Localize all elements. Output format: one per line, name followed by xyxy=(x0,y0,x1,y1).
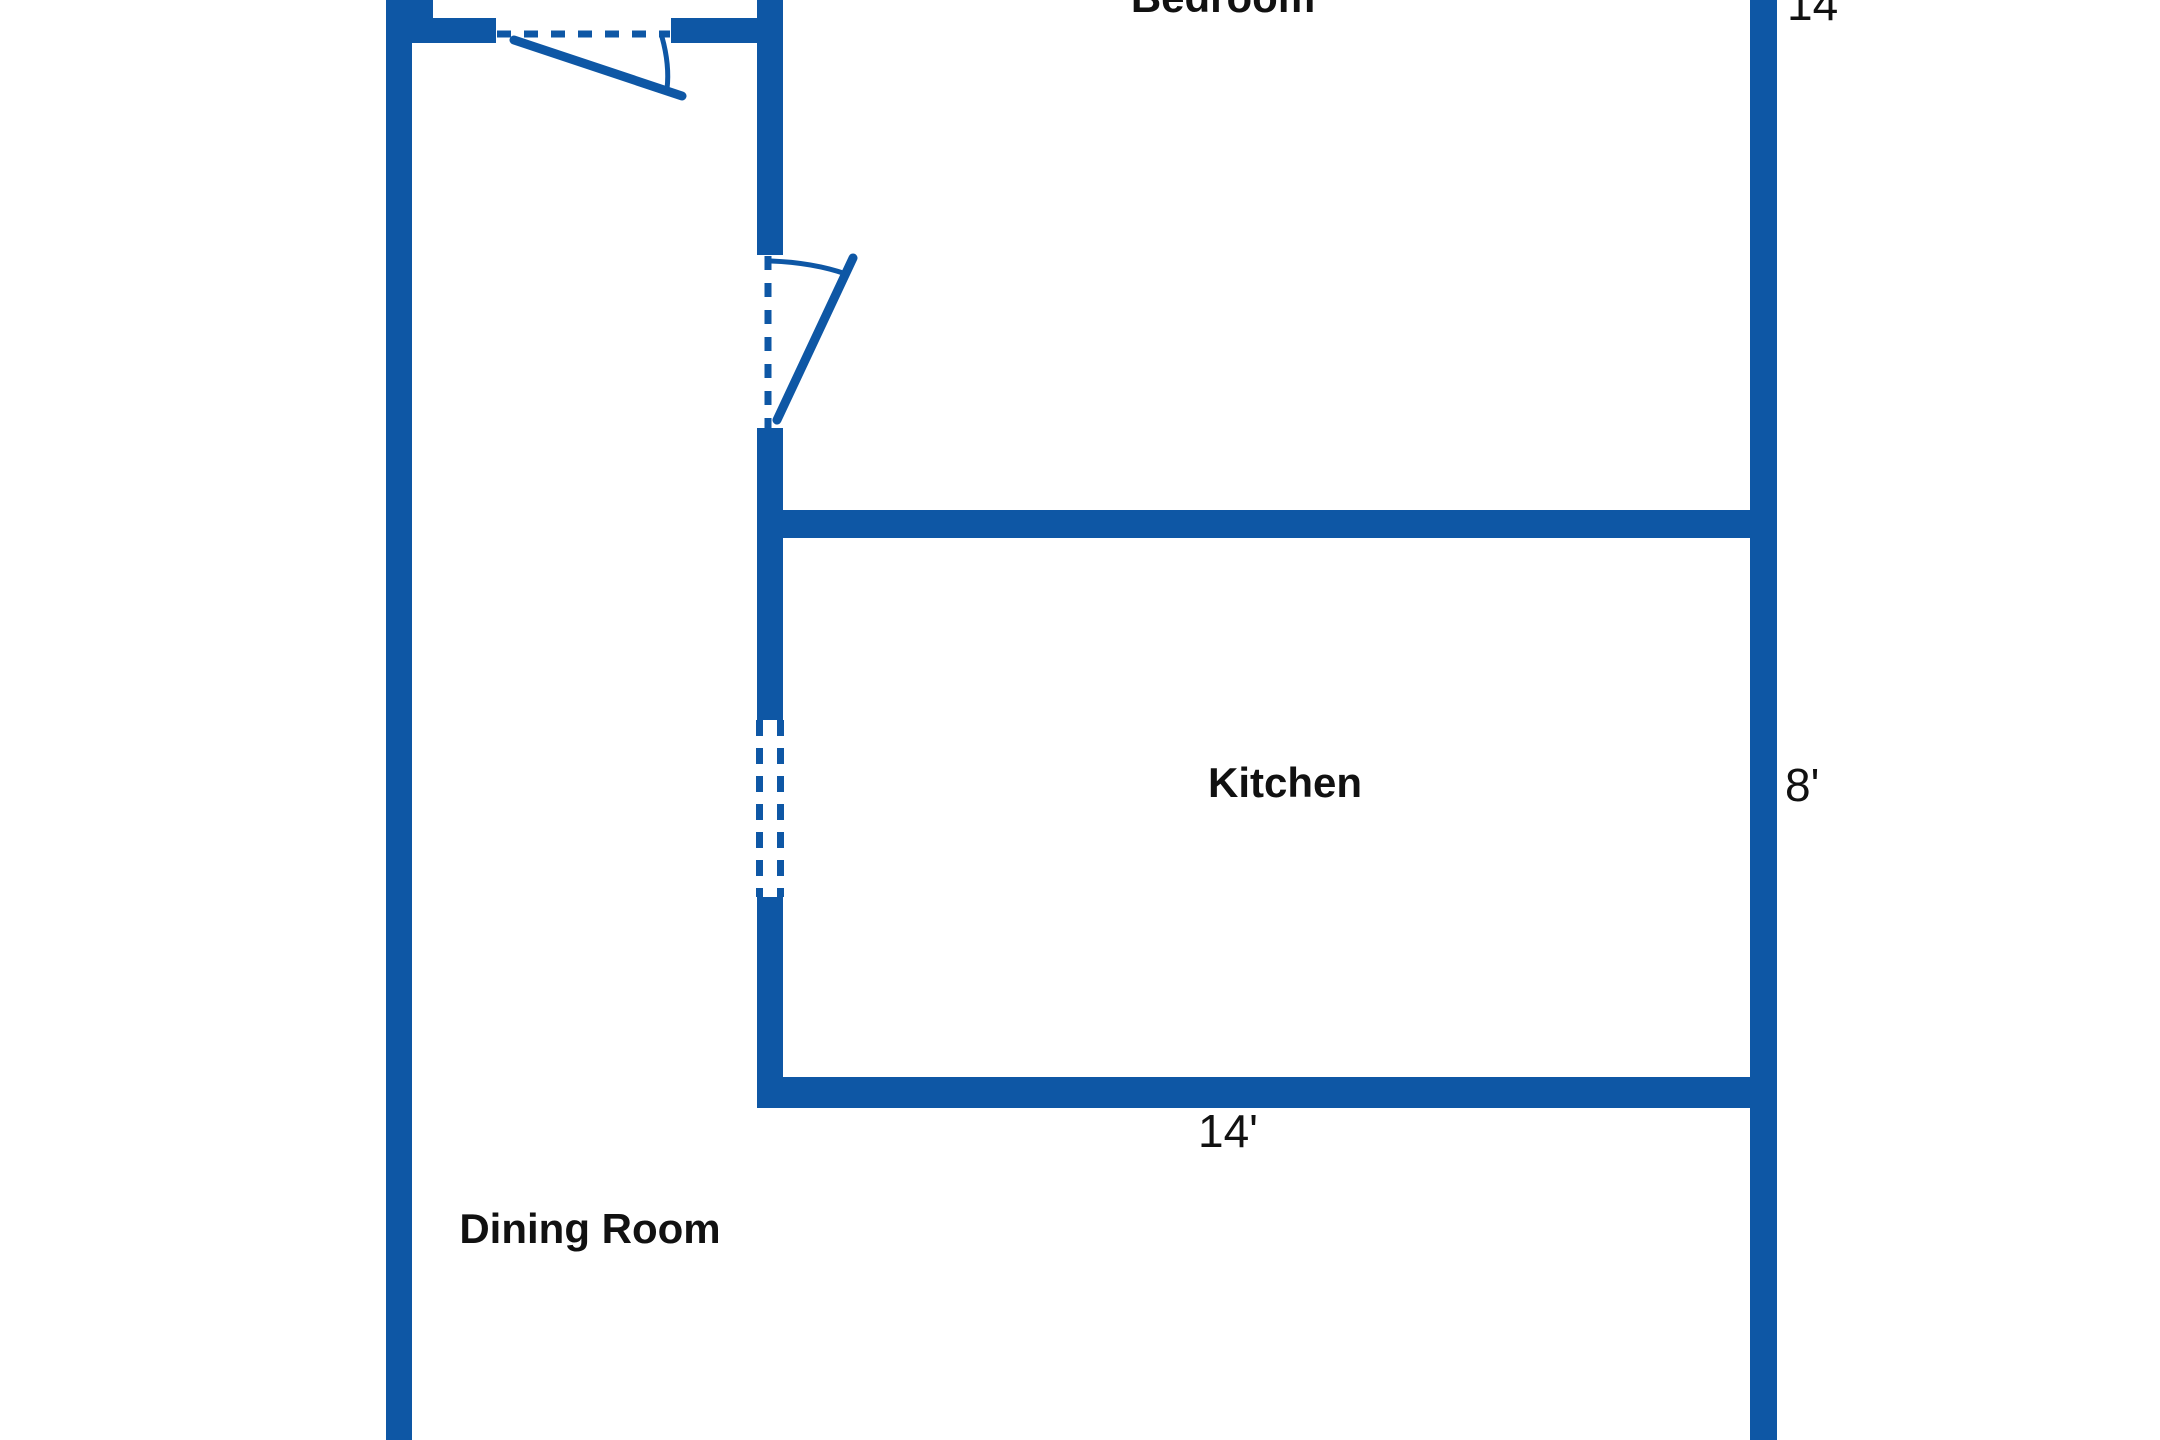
floorplan-page: Bedroom Kitchen Dining Room 14' 8' 14' xyxy=(0,0,2160,1440)
interior-wall-lower xyxy=(757,897,783,1108)
kitchen-bottom-wall xyxy=(757,1077,1777,1108)
kitchen-side-dimension: 8' xyxy=(1785,759,1819,811)
top-door-leaf xyxy=(514,40,682,96)
interior-wall-middle xyxy=(757,428,783,720)
interior-wall-upper xyxy=(757,0,783,255)
middle-door-swing-arc xyxy=(771,261,846,274)
top-door-swing-arc xyxy=(662,37,668,89)
floorplan-drawing: Bedroom Kitchen Dining Room 14' 8' 14' xyxy=(0,0,2160,1440)
dining-room-label: Dining Room xyxy=(459,1205,720,1252)
left-exterior-wall xyxy=(386,0,412,1440)
bedroom-side-dimension: 14' xyxy=(1787,0,1847,30)
middle-door-leaf xyxy=(777,258,853,420)
bedroom-label: Bedroom xyxy=(1131,0,1315,21)
kitchen-width-dimension: 14' xyxy=(1198,1105,1258,1157)
kitchen-label: Kitchen xyxy=(1208,759,1362,806)
kitchen-top-wall xyxy=(783,510,1750,538)
right-exterior-wall xyxy=(1750,0,1777,1440)
top-wall-left xyxy=(412,18,496,43)
